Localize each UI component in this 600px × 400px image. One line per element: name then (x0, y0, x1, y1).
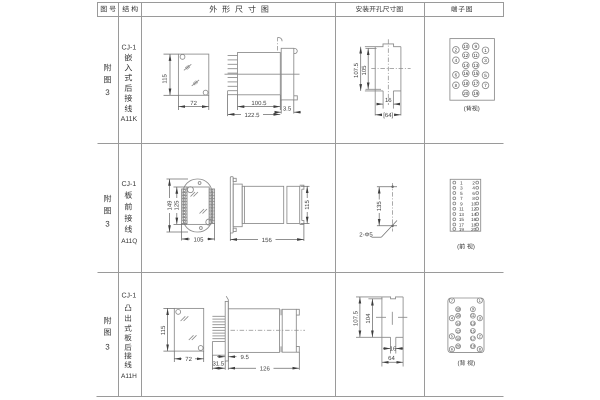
svg-text:(前 视): (前 视) (457, 243, 475, 251)
svg-text:11: 11 (473, 53, 478, 58)
svg-text:15: 15 (473, 71, 479, 76)
svg-text:线: 线 (124, 225, 132, 234)
svg-text:14: 14 (463, 63, 469, 68)
svg-text:31.5: 31.5 (212, 360, 224, 367)
svg-text:105: 105 (193, 237, 204, 244)
svg-text:4: 4 (451, 317, 453, 321)
svg-text:15: 15 (471, 329, 475, 333)
svg-text:图: 图 (104, 328, 112, 337)
svg-text:18: 18 (456, 308, 460, 312)
svg-text:9: 9 (460, 201, 463, 206)
svg-text:CJ-1: CJ-1 (122, 293, 137, 300)
svg-text:8: 8 (455, 83, 458, 88)
svg-text:149: 149 (166, 200, 173, 211)
svg-text:126: 126 (260, 366, 271, 373)
svg-text:安装开孔尺寸图: 安装开孔尺寸图 (356, 5, 404, 13)
svg-text:6: 6 (455, 73, 458, 78)
svg-text:115: 115 (160, 325, 167, 335)
svg-text:7: 7 (451, 299, 453, 303)
svg-text:20: 20 (463, 91, 469, 96)
svg-text:附: 附 (104, 195, 112, 204)
svg-text:115: 115 (304, 200, 311, 210)
svg-text:1: 1 (484, 48, 487, 53)
svg-text:107.5: 107.5 (353, 62, 360, 78)
svg-text:11: 11 (471, 314, 475, 318)
svg-text:出: 出 (124, 314, 132, 323)
svg-text:3: 3 (105, 220, 110, 229)
svg-text:125: 125 (174, 200, 181, 211)
svg-text:100.5: 100.5 (251, 100, 267, 107)
svg-text:线: 线 (124, 104, 132, 113)
svg-text:19: 19 (459, 227, 465, 232)
svg-text:图: 图 (104, 207, 112, 216)
svg-text:接: 接 (124, 352, 132, 361)
svg-text:式: 式 (124, 324, 132, 333)
svg-text:12: 12 (456, 329, 460, 333)
svg-text:板: 板 (124, 191, 132, 200)
svg-text:10: 10 (463, 44, 469, 49)
svg-text:20: 20 (456, 345, 460, 349)
svg-text:20: 20 (471, 227, 477, 232)
svg-text:19: 19 (471, 345, 475, 349)
svg-text:19: 19 (473, 91, 479, 96)
svg-text:122.5: 122.5 (244, 112, 260, 119)
svg-text:5: 5 (460, 191, 463, 196)
svg-text:凸: 凸 (124, 304, 132, 313)
svg-text:13: 13 (473, 63, 479, 68)
svg-text:接: 接 (124, 94, 132, 103)
svg-text:3: 3 (484, 58, 487, 63)
svg-text:A11Q: A11Q (121, 238, 137, 245)
svg-text:CJ-1: CJ-1 (122, 181, 137, 188)
svg-text:CJ-1: CJ-1 (122, 45, 137, 52)
svg-text:72: 72 (190, 100, 197, 107)
svg-text:16: 16 (463, 71, 469, 76)
svg-text:14: 14 (456, 322, 460, 326)
svg-text:2-Φ5: 2-Φ5 (359, 232, 373, 239)
svg-text:6: 6 (451, 348, 453, 352)
svg-text:14: 14 (471, 212, 477, 217)
svg-text:16: 16 (390, 346, 397, 353)
svg-text:12: 12 (463, 53, 469, 58)
svg-text:前: 前 (124, 203, 132, 212)
svg-text:8: 8 (479, 348, 481, 352)
svg-text:9.5: 9.5 (241, 354, 250, 361)
svg-text:接: 接 (124, 214, 132, 223)
svg-text:6: 6 (472, 191, 475, 196)
svg-text:104: 104 (365, 313, 372, 324)
svg-text:结 构: 结 构 (122, 6, 138, 14)
svg-text:5: 5 (451, 335, 453, 339)
svg-text:嵌: 嵌 (124, 53, 132, 62)
svg-text:4: 4 (455, 58, 458, 63)
svg-text:线: 线 (124, 360, 132, 369)
svg-text:2: 2 (455, 48, 458, 53)
svg-text:后: 后 (124, 343, 132, 352)
svg-text:10: 10 (471, 201, 477, 206)
svg-text:64: 64 (388, 355, 395, 362)
svg-text:A11H: A11H (121, 373, 137, 380)
svg-text:(背视): (背视) (464, 104, 480, 112)
svg-text:3: 3 (105, 342, 110, 351)
svg-text:18: 18 (463, 81, 469, 86)
svg-text:17: 17 (471, 337, 475, 341)
svg-text:16: 16 (456, 314, 460, 318)
svg-text:1: 1 (479, 299, 481, 303)
svg-text:13: 13 (471, 322, 475, 326)
svg-text:10: 10 (456, 337, 460, 341)
svg-text:105: 105 (361, 65, 368, 76)
svg-text:5: 5 (484, 73, 487, 78)
svg-text:16: 16 (385, 97, 392, 104)
svg-text:135: 135 (376, 201, 383, 212)
svg-text:附: 附 (104, 316, 112, 325)
svg-text:107.5: 107.5 (352, 310, 359, 326)
svg-text:17: 17 (473, 81, 479, 86)
svg-text:端子图: 端子图 (451, 5, 474, 13)
svg-text:115: 115 (162, 73, 169, 83)
svg-text:式: 式 (124, 74, 132, 83)
svg-text:9: 9 (472, 308, 474, 312)
svg-text:(背 视): (背 视) (457, 359, 475, 367)
svg-text:入: 入 (124, 64, 132, 73)
svg-text:156: 156 (262, 237, 273, 244)
svg-text:9: 9 (474, 44, 477, 49)
svg-text:13: 13 (459, 212, 465, 217)
svg-text:2: 2 (479, 335, 481, 339)
svg-text:A11K: A11K (121, 116, 138, 123)
svg-text:图 号: 图 号 (100, 6, 116, 14)
svg-text:图: 图 (104, 76, 112, 85)
svg-text:72: 72 (185, 356, 192, 363)
svg-text:3: 3 (105, 88, 110, 97)
svg-text:3: 3 (479, 317, 481, 321)
svg-text:3.5: 3.5 (283, 105, 292, 112)
svg-text:后: 后 (124, 84, 132, 93)
svg-text:附: 附 (104, 63, 112, 72)
svg-text:[64]: [64] (383, 112, 393, 119)
svg-text:外形尺寸图: 外形尺寸图 (209, 5, 274, 14)
svg-text:板: 板 (124, 333, 132, 342)
svg-text:7: 7 (484, 83, 487, 88)
